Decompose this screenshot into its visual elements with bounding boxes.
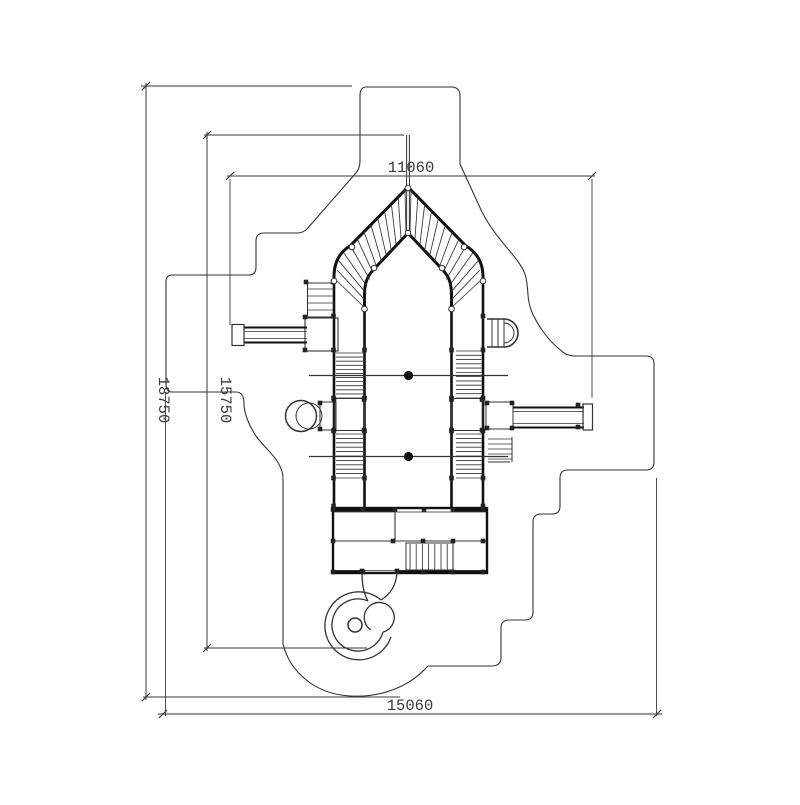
- left-mid-platform: [334, 399, 365, 431]
- right-mini-ladder: [488, 437, 512, 462]
- rail-joint-circles: [331, 185, 486, 312]
- mast: [407, 135, 410, 233]
- overhead-beams: [309, 376, 508, 457]
- right-d-panel: [487, 319, 518, 347]
- dim-label-overall-width: 15060: [387, 697, 434, 715]
- dim-label-overall-height: 18750: [154, 377, 172, 424]
- plan-drawing: 11060 15060 18750 15750: [0, 0, 800, 800]
- play-structure: [232, 135, 593, 660]
- beam-ball-lower: [404, 452, 413, 461]
- dimension-labels: 11060 15060 18750 15750: [154, 159, 434, 715]
- bow-inner-rail: [365, 233, 452, 312]
- drawing-canvas: 11060 15060 18750 15750: [0, 0, 800, 800]
- left-slide: [232, 325, 307, 346]
- crawl-tunnel: [286, 401, 337, 432]
- hull-rails: [334, 282, 483, 509]
- right-slide-connector: [486, 402, 513, 429]
- beam-ball-upper: [404, 371, 413, 380]
- right-slide: [513, 404, 593, 430]
- safety-zone-outline: [166, 87, 654, 696]
- top-left-ladder: [308, 283, 335, 317]
- right-mid-platform: [452, 399, 484, 431]
- dim-label-top-width: 11060: [388, 159, 435, 177]
- dim-label-inner-height: 15750: [216, 377, 234, 424]
- spiral-slide: [325, 573, 397, 660]
